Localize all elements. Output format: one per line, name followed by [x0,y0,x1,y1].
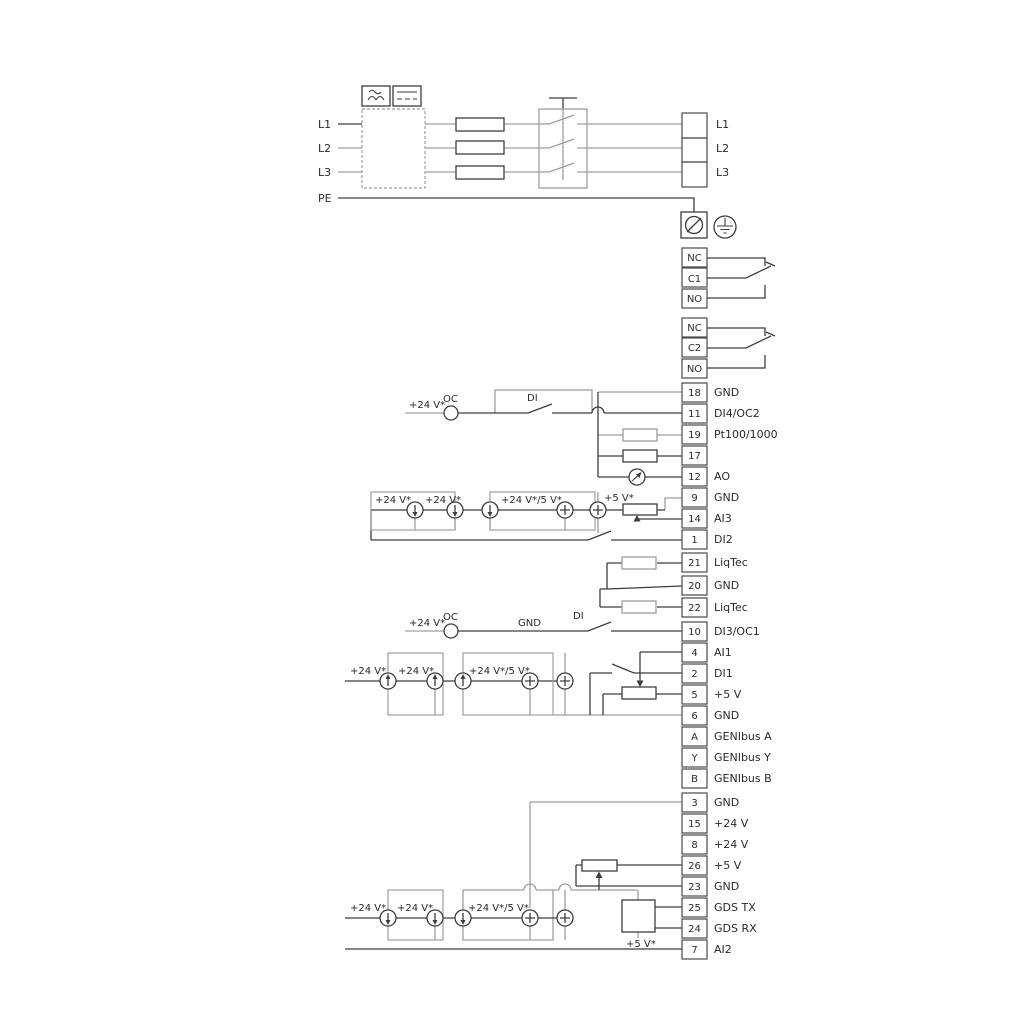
label-l1-in: L1 [318,118,331,131]
terminal-label: +24 V [714,838,749,851]
terminal-number: 5 [691,690,697,701]
v24-5-label: +24 V*/5 V* [468,903,529,914]
gds-sensor-box [622,900,655,932]
terminal-number: 4 [691,648,697,659]
label-pe-in: PE [318,192,332,205]
terminal-number: 15 [688,819,701,830]
v24-label: +24 V* [350,666,386,677]
terminal-label: GENIbus A [714,730,772,743]
v24-label: +24 V* [409,618,445,629]
terminal-number: 26 [688,861,701,872]
terminal-label: +5 V [714,859,742,872]
voltage-source-icon [557,910,573,926]
current-source-icon [482,502,498,518]
di-label: DI [527,393,538,404]
terminal-label: DI4/OC2 [714,407,760,420]
current-source-icon [447,502,463,518]
dc-icon [393,86,421,106]
terminal-label: AI2 [714,943,732,956]
terminal-label: AO [714,470,730,483]
terminal-number: 25 [688,903,701,914]
terminal-label: DI2 [714,533,733,546]
terminal-label: +5 V [714,688,742,701]
ground-icon [714,216,736,238]
label-l2-out: L2 [716,142,729,155]
terminal-label: GND [714,796,739,809]
terminal-number: 2 [691,669,697,680]
voltage-source-icon [522,673,538,689]
terminal-label: GENIbus B [714,772,772,785]
terminal-number: 20 [688,581,701,592]
relay-terminal: NO [687,294,702,305]
relay-terminal: C1 [688,274,701,285]
oc-label: OC [443,612,458,623]
terminal-label: LiqTec [714,601,748,614]
terminal-number: 10 [688,627,701,638]
relay-terminal: NC [687,323,701,334]
potentiometer [623,504,657,515]
v24-label: +24 V* [350,903,386,914]
wire [338,98,775,949]
terminal-number: 1 [691,535,697,546]
liqtec-sensor-icon [622,557,656,569]
setpoint-potentiometer [582,860,617,878]
pe-terminal-icon [681,212,707,238]
terminal-number: 11 [688,409,701,420]
terminal-number: A [691,732,698,743]
wiper-arrow [634,515,641,522]
terminal-number: 9 [691,493,697,504]
v24-5-label: +24 V*/5 V* [501,495,562,506]
terminal-number: 12 [688,472,701,483]
terminal-block [682,113,707,187]
di3-circuit: +24 V* OC GND DI [409,611,584,638]
terminal-label: GND [714,491,739,504]
terminal-label: AI3 [714,512,732,525]
v24-label: +24 V* [409,400,445,411]
option-box [463,653,553,715]
mains-terminal-block: L1 L2 L3 [682,113,729,187]
terminal-label: GND [714,709,739,722]
voltage-source-icon [557,673,573,689]
terminal-number: Y [690,753,698,764]
v24-label: +24 V* [397,903,433,914]
current-source-icon [427,910,443,926]
emc-filter-box [362,109,425,188]
relay2-block: NC C2 NO [682,318,707,378]
liqtec-sensor-icon [622,601,656,613]
wire [338,109,682,940]
terminal-number: 6 [691,711,697,722]
terminal-number: 14 [688,514,701,525]
pt100-sensor-icon [623,450,657,462]
dc-icon-box [393,86,421,106]
terminal-number: 22 [688,603,701,614]
terminal-label: GND [714,579,739,592]
terminal-number: 21 [688,558,701,569]
terminal-number: 3 [691,798,697,809]
oc-label: OC [443,394,458,405]
v24-5-label: +24 V*/5 V* [469,666,530,677]
terminal-label: LiqTec [714,556,748,569]
wiper-arrow [637,681,644,688]
current-source-icon [380,910,396,926]
current-source-icon [455,910,471,926]
di-label: DI [573,611,584,622]
terminal-label: GENIbus Y [714,751,771,764]
v24-label: +24 V* [375,495,411,506]
terminal-number: B [691,774,698,785]
power-input-labels: L1 L2 L3 PE [318,118,332,205]
terminal-strip-3: 10 4 2 5 6 A Y B DI3/OC1 AI1 DI1 +5 V GN… [682,622,772,788]
voltage-source-icon [522,910,538,926]
terminal-number: 17 [688,451,701,462]
v5-label: +5 V* [604,493,634,504]
label-l3-out: L3 [716,166,729,179]
terminal-label: GND [714,386,739,399]
fuses [456,118,504,179]
terminal-label: GDS RX [714,922,757,935]
terminal-number: 23 [688,882,701,893]
terminal-label: Pt100/1000 [714,428,778,441]
label-l3-in: L3 [318,166,331,179]
ai3-sources: +24 V* +24 V* +24 V*/5 V* +5 V* [371,492,657,530]
terminal-label: +24 V [714,817,749,830]
relay1-block: NC C1 NO [682,248,707,308]
terminal-label: AI1 [714,646,732,659]
oc-output-icon [444,406,458,420]
terminal-strip-2: 21 20 22 LiqTec GND LiqTec [622,553,748,617]
current-source-icon [455,673,471,689]
fuse-icon [456,118,504,131]
wiper-arrow [596,872,603,879]
diagram-canvas: L1 L2 L3 PE L1 L2 L3 NC C [0,0,1024,1024]
terminal-strip-1: 18 11 19 17 12 9 14 1 GND DI4/OC2 Pt100/… [682,383,778,549]
relay-terminal: NO [687,364,702,375]
current-source-icon [380,673,396,689]
ac-icon [362,86,390,106]
v5-label: +5 V* [626,939,656,950]
terminal-number: 8 [691,840,697,851]
fuse-icon [456,166,504,179]
terminal-number: 19 [688,430,701,441]
label-l2-in: L2 [318,142,331,155]
terminal-number: 7 [691,945,697,956]
relay-terminal: C2 [688,343,701,354]
label-l1-out: L1 [716,118,729,131]
terminal-label: GDS TX [714,901,756,914]
terminal-number: 18 [688,388,701,399]
voltage-source-icon [557,502,573,518]
di4-circuit: +24 V* OC DI [409,393,657,485]
pt100-sensor-icon [623,429,657,441]
current-source-icon [407,502,423,518]
ac-icon-box [362,86,390,106]
voltage-source-icon [590,502,606,518]
terminal-strip-4: 3 15 8 26 23 25 24 7 GND +24 V +24 V +5 … [682,793,757,959]
relay-terminal: NC [687,253,701,264]
gnd-label: GND [518,618,541,629]
ai2-sources: +24 V* +24 V* +24 V*/5 V* +5 V* [350,890,656,950]
potentiometer [622,687,656,699]
ai1-sources: +24 V* +24 V* +24 V*/5 V* [350,653,656,715]
terminal-number: 24 [688,924,701,935]
terminal-label: DI1 [714,667,733,680]
fuse-icon [456,141,504,154]
terminal-label: GND [714,880,739,893]
wiring-diagram: L1 L2 L3 PE L1 L2 L3 NC C [0,0,1024,1024]
potentiometer [582,860,617,871]
oc-output-icon [444,624,458,638]
current-source-icon [427,673,443,689]
terminal-label: DI3/OC1 [714,625,760,638]
